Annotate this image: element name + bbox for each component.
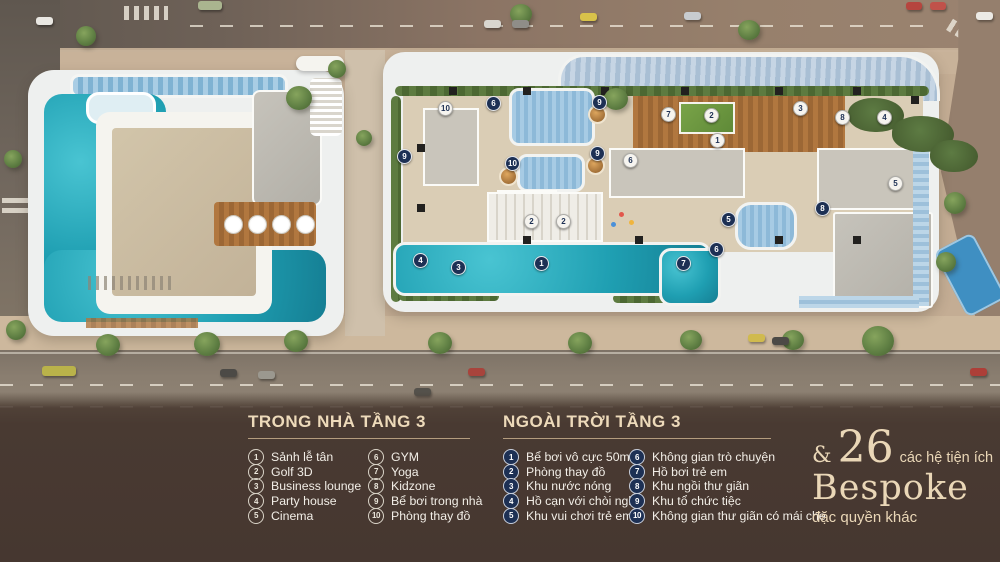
legend-item: 3Business lounge: [248, 479, 354, 494]
legend-item-label: Không gian trò chuyện: [652, 450, 775, 464]
legend-item: 1Sảnh lễ tân: [248, 450, 354, 465]
legend-item: 2Phòng thay đồ: [503, 465, 615, 480]
indoor-amenity-marker: 3: [793, 101, 808, 116]
legend-item: 1Bể bơi vô cực 50m: [503, 450, 615, 465]
promo-line1: các hệ tiện ích: [900, 450, 994, 466]
outdoor-list: 1Bể bơi vô cực 50m2Phòng thay đồ3Khu nướ…: [503, 450, 826, 523]
promo-line2: đặc quyền khác: [812, 509, 998, 526]
legend-item-number: 7: [368, 464, 384, 480]
outdoor-amenity-marker: 6: [486, 96, 501, 111]
indoor-amenity-marker: 4: [877, 110, 892, 125]
legend-item: 2Golf 3D: [248, 465, 354, 480]
legend-item: 9Khu tổ chức tiệc: [629, 494, 826, 509]
legend-item-label: Hồ bơi trẻ em: [652, 465, 727, 479]
legend-item: 5Khu vui chơi trẻ em: [503, 508, 615, 523]
outdoor-heading: NGOÀI TRỜI TẦNG 3: [503, 412, 826, 432]
outdoor-amenity-marker: 9: [592, 95, 607, 110]
legend-item-label: Sảnh lễ tân: [271, 450, 333, 464]
legend-panel: THE LEGEND DA NANG Tổng mặt bằng tiện íc…: [0, 392, 1000, 562]
outdoor-amenity-marker: 6: [709, 242, 724, 257]
legend-item-label: Phòng thay đồ: [526, 465, 605, 479]
outdoor-amenity-marker: 1: [534, 256, 549, 271]
outdoor-amenity-marker: 4: [413, 253, 428, 268]
legend-item: 3Khu nước nóng: [503, 479, 615, 494]
legend-item: 7Hồ bơi trẻ em: [629, 465, 826, 480]
indoor-amenity-marker: 2: [524, 214, 539, 229]
promo-count: 26: [838, 428, 894, 468]
legend-item: 5Cinema: [248, 508, 354, 523]
legend-item-number: 4: [248, 493, 264, 509]
legend-item: 9Bể bơi trong nhà: [368, 494, 482, 509]
legend-item-number: 8: [629, 478, 645, 494]
outdoor-amenity-marker: 3: [451, 260, 466, 275]
outdoor-amenity-marker: 10: [505, 156, 520, 171]
legend-item: 8Khu ngồi thư giãn: [629, 479, 826, 494]
indoor-heading: TRONG NHÀ TẦNG 3: [248, 412, 482, 432]
indoor-amenity-marker: 2: [704, 108, 719, 123]
legend-item-number: 6: [368, 449, 384, 465]
legend-item-label: Khu nước nóng: [526, 479, 611, 493]
legend-item-number: 2: [248, 464, 264, 480]
legend-item-number: 3: [503, 478, 519, 494]
legend-item-number: 10: [368, 508, 384, 524]
indoor-amenity-marker: 6: [623, 153, 638, 168]
indoor-amenity-marker: 10: [438, 101, 453, 116]
legend-item-number: 10: [629, 508, 645, 524]
outdoor-amenity-marker: 7: [676, 256, 691, 271]
legend-item-label: Bể bơi vô cực 50m: [526, 450, 630, 464]
legend-item: 8Kidzone: [368, 479, 482, 494]
promo-amp: &: [812, 443, 832, 468]
legend-item-label: Khu tổ chức tiệc: [652, 494, 741, 508]
legend-item-label: Khu ngồi thư giãn: [652, 479, 749, 493]
legend-item: 6GYM: [368, 450, 482, 465]
outdoor-section: NGOÀI TRỜI TẦNG 3 1Bể bơi vô cực 50m2Phò…: [503, 412, 826, 523]
indoor-amenity-marker: 5: [888, 176, 903, 191]
indoor-amenity-marker: 7: [661, 107, 676, 122]
indoor-amenity-marker: 2: [556, 214, 571, 229]
legend-item-number: 9: [629, 493, 645, 509]
legend-item-number: 6: [629, 449, 645, 465]
indoor-section: TRONG NHÀ TẦNG 3 1Sảnh lễ tân2Golf 3D3Bu…: [248, 412, 482, 523]
outdoor-amenity-marker: 8: [815, 201, 830, 216]
legend-item-number: 4: [503, 493, 519, 509]
legend-item: 7Yoga: [368, 465, 482, 480]
legend-item-label: Golf 3D: [271, 465, 313, 479]
legend-item-label: Phòng thay đồ: [391, 509, 470, 523]
legend-item-number: 7: [629, 464, 645, 480]
plan-markers: 1072138465229699104317568: [0, 0, 1000, 420]
indoor-amenity-marker: 8: [835, 110, 850, 125]
legend-item-label: Kidzone: [391, 479, 435, 493]
legend-item: 10Phòng thay đồ: [368, 508, 482, 523]
legend-item-label: Party house: [271, 494, 337, 508]
legend-item-number: 5: [503, 508, 519, 524]
legend-item-number: 5: [248, 508, 264, 524]
legend-item-number: 9: [368, 493, 384, 509]
divider: [503, 438, 771, 439]
legend-item: 6Không gian trò chuyện: [629, 450, 826, 465]
indoor-amenity-marker: 1: [710, 133, 725, 148]
legend-item-number: 8: [368, 478, 384, 494]
outdoor-amenity-marker: 9: [397, 149, 412, 164]
legend-item-label: Hồ cạn với chòi nghỉ: [526, 494, 638, 508]
legend-item: 4Party house: [248, 494, 354, 509]
legend-item-number: 3: [248, 478, 264, 494]
legend-item: 10Không gian thư giãn có mái che: [629, 508, 826, 523]
legend-item: 4Hồ cạn với chòi nghỉ: [503, 494, 615, 509]
legend-item-label: Bể bơi trong nhà: [391, 494, 482, 508]
outdoor-amenity-marker: 9: [590, 146, 605, 161]
outdoor-amenity-marker: 5: [721, 212, 736, 227]
promo-brand: Bespoke: [812, 468, 998, 508]
legend-item-label: Business lounge: [271, 479, 361, 493]
legend-item-label: Không gian thư giãn có mái che: [652, 509, 826, 523]
legend-item-label: Yoga: [391, 465, 419, 479]
bespoke-promo: & 26 các hệ tiện ích Bespoke đặc quyền k…: [812, 428, 998, 526]
legend-item-label: Cinema: [271, 509, 313, 523]
legend-item-number: 1: [248, 449, 264, 465]
legend-item-number: 1: [503, 449, 519, 465]
legend-item-number: 2: [503, 464, 519, 480]
divider: [248, 438, 470, 439]
indoor-list: 1Sảnh lễ tân2Golf 3D3Business lounge4Par…: [248, 450, 482, 523]
legend-item-label: Khu vui chơi trẻ em: [526, 509, 632, 523]
legend-item-label: GYM: [391, 450, 419, 464]
masterplan-image: 1072138465229699104317568 THE LEGEND DA …: [0, 0, 1000, 562]
